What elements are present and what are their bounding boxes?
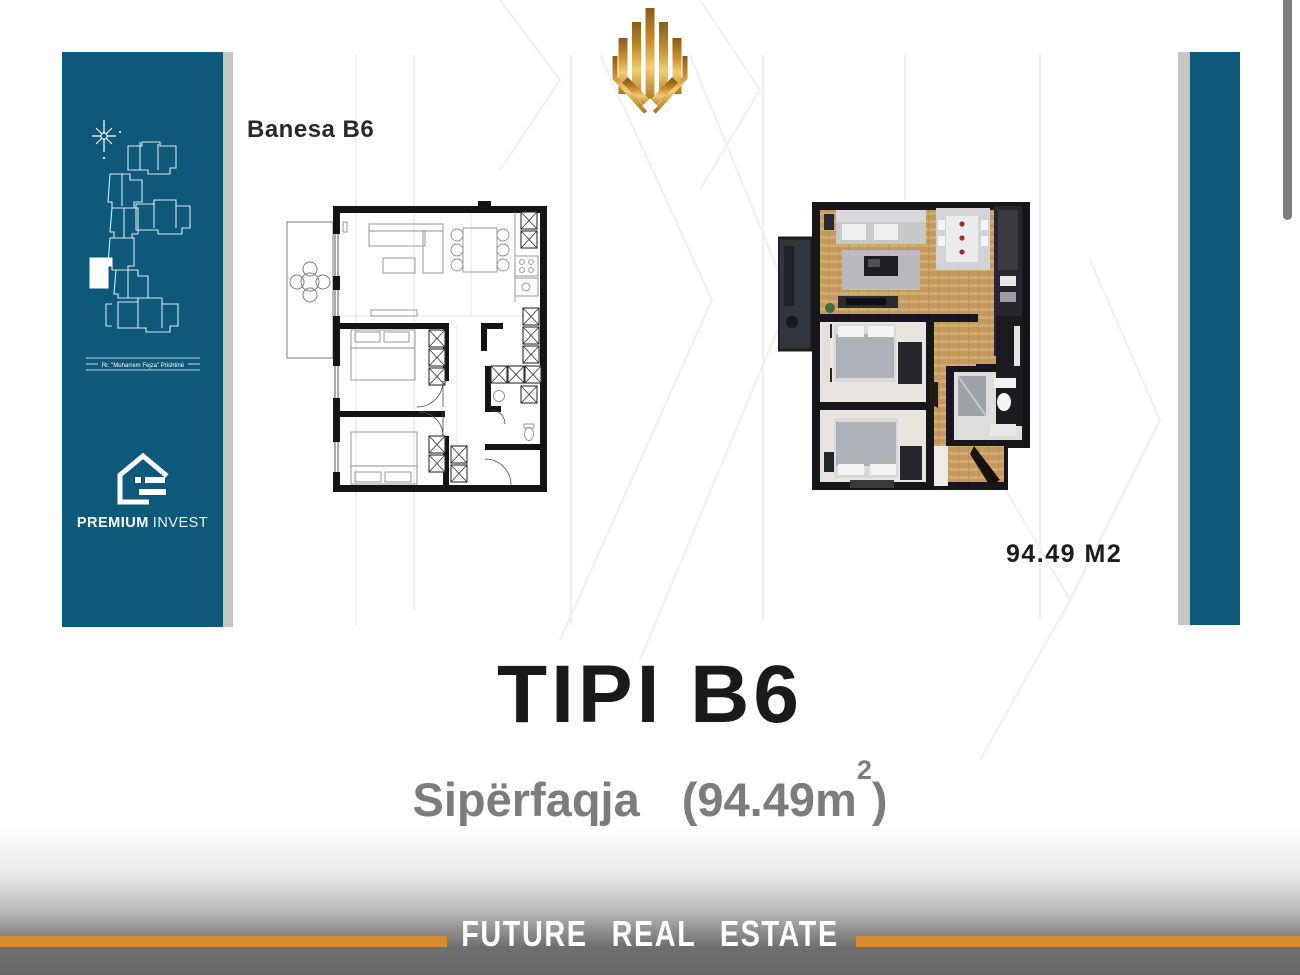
surface-label: Sipërfaqja [413, 773, 640, 826]
plant-3d [825, 303, 835, 313]
premium-invest-house-icon [111, 450, 175, 508]
sidebar-shadow [223, 52, 233, 627]
compass-icon [92, 120, 121, 159]
brand-light: INVEST [153, 515, 208, 531]
floorplan-3d [778, 196, 1038, 496]
footer-brand-text: FUTURE REAL ESTATE [0, 913, 1300, 955]
surface-value: (94.49m [682, 773, 857, 826]
sidebar: Rr. "Muharrem Fejza" Prishtinë PREMIUMIN… [62, 52, 223, 627]
highlighted-unit [90, 258, 112, 288]
right-accent-bar [1190, 52, 1240, 625]
surface-subtitle: Sipërfaqja(94.49m2) [0, 772, 1300, 827]
right-bar-shadow [1178, 52, 1190, 625]
brochure-page: Rr. "Muharrem Fejza" Prishtinë PREMIUMIN… [0, 0, 1300, 975]
brand-bold: PREMIUM [77, 515, 149, 531]
area-note: 94.49 M2 [1006, 540, 1122, 569]
surface-close: ) [872, 773, 888, 826]
building-site-plan: Rr. "Muharrem Fejza" Prishtinë [76, 112, 210, 392]
page-title: TIPI B6 [0, 648, 1300, 742]
floorplan-2d [285, 198, 570, 498]
plan-label: Banesa B6 [247, 116, 374, 144]
gold-emblem-logo [605, 8, 695, 126]
sidebar-address: Rr. "Muharrem Fejza" Prishtinë [102, 363, 185, 369]
balcony-3d [778, 238, 812, 350]
scrollbar-thumb[interactable] [1283, 0, 1292, 220]
surface-sup: 2 [857, 755, 872, 785]
premium-invest-wordmark: PREMIUMINVEST [62, 515, 223, 531]
